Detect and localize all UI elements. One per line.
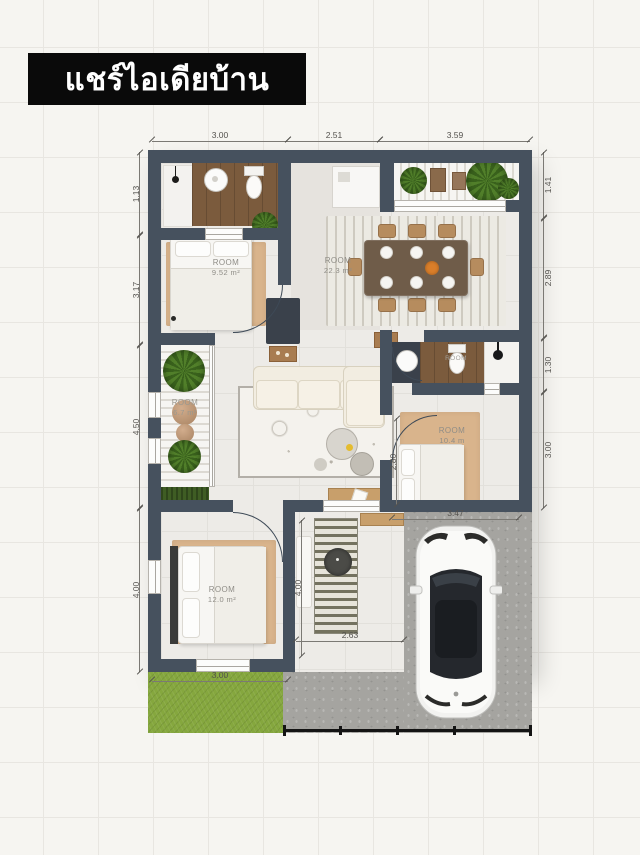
side-table — [314, 458, 327, 471]
bedroom1-pillow — [213, 241, 249, 257]
plant-icon — [400, 167, 427, 194]
plant-icon — [498, 178, 519, 199]
dining-chair — [438, 224, 456, 238]
window — [484, 383, 500, 395]
wall-segment — [148, 500, 233, 512]
title-banner: แชร์ไอเดียบ้าน — [28, 53, 306, 105]
hedge — [161, 487, 209, 500]
console-shelf — [269, 346, 297, 362]
pendant-lamp-icon — [172, 176, 179, 183]
plate — [442, 276, 455, 289]
dining-chair — [470, 258, 484, 276]
dim-left-3: 4.50 — [139, 345, 140, 508]
dim-right-1: 1.41 — [543, 152, 544, 218]
dim-bedroom2-length: 3.47 — [392, 519, 519, 520]
dim-left-4: 4.00 — [139, 508, 140, 672]
dim-closet-width: 2.63 — [296, 641, 404, 642]
dim-top-3: 3.59 — [380, 141, 530, 142]
dim-top-2: 2.51 — [288, 141, 380, 142]
dining-chair — [378, 224, 396, 238]
wall-segment — [283, 500, 295, 512]
floor-lamp-icon — [171, 316, 176, 321]
plate — [410, 276, 423, 289]
room-label-garden-strip: ROOM 6.7 m² — [161, 398, 209, 418]
window — [148, 438, 161, 464]
window — [148, 392, 161, 418]
page-title: แชร์ไอเดียบ้าน — [65, 54, 270, 104]
plate — [380, 246, 393, 259]
fence-post — [283, 725, 286, 736]
dining-chair — [378, 298, 396, 312]
wall-segment — [380, 383, 392, 395]
sofa-cushion — [256, 380, 298, 409]
room-label-dining: ROOM 22.3 m² — [312, 256, 364, 276]
dim-right-4: 3.00 — [543, 392, 544, 508]
plant-icon — [163, 350, 205, 392]
window — [394, 200, 506, 212]
wall-segment — [161, 228, 205, 240]
sofa-cushion — [298, 380, 340, 409]
fence-post — [453, 726, 456, 735]
sliding-door — [323, 500, 380, 512]
wall-segment — [506, 200, 532, 212]
room-label-bathroom2: ROOM — [438, 355, 474, 363]
wall-segment — [424, 330, 532, 342]
car-top-view — [410, 524, 502, 720]
wall-segment — [243, 228, 278, 240]
wall-segment — [278, 150, 291, 285]
toilet1-bowl — [246, 175, 262, 199]
plate — [442, 246, 455, 259]
page: แชร์ไอเดียบ้าน — [0, 0, 640, 855]
plant-icon — [168, 440, 201, 473]
dim-right-2: 2.89 — [543, 218, 544, 338]
garden-glass-wall — [209, 345, 215, 487]
fence-line — [283, 729, 532, 732]
wall-segment — [148, 150, 532, 163]
fence-post — [529, 725, 532, 736]
room-label-bedroom2: ROOM 10.4 m — [424, 426, 480, 446]
shower-area — [484, 342, 520, 383]
wall-segment — [380, 395, 392, 415]
dining-chair — [438, 298, 456, 312]
planter-box — [430, 168, 446, 192]
wall-segment — [295, 500, 323, 512]
dim-top-1: 3.00 — [152, 141, 288, 142]
plate — [410, 246, 423, 259]
console-decor — [276, 351, 280, 355]
plate — [380, 276, 393, 289]
room-label-bedroom1: ROOM 9.52 m² — [196, 258, 256, 278]
closet-rug — [314, 518, 358, 634]
fence-post — [396, 726, 399, 735]
shower-head-icon — [493, 350, 503, 360]
dim-left-2: 3.17 — [139, 235, 140, 345]
shower-mat — [163, 165, 193, 227]
dim-left-1: 1.13 — [139, 152, 140, 235]
dining-chair — [408, 298, 426, 312]
sofa-cushion — [346, 380, 384, 426]
window — [148, 560, 161, 594]
driveway-concrete — [283, 672, 404, 733]
bedroom1-pillow — [175, 241, 211, 257]
wall-segment — [161, 333, 215, 345]
stool-decor — [336, 558, 339, 561]
sink-drain — [212, 176, 218, 182]
dim-right-3: 1.30 — [543, 338, 544, 392]
wall-segment — [412, 383, 484, 395]
decor-bowl — [346, 444, 353, 451]
room-label-bedroom3: ROOM 12.0 m² — [194, 585, 250, 605]
planter-box — [452, 172, 466, 190]
dining-chair — [408, 224, 426, 238]
console-decor — [285, 353, 289, 357]
kitchen-sink — [338, 172, 350, 182]
dim-bedroom2-width: 2.80 — [396, 418, 397, 505]
bedroom3-headboard — [170, 546, 178, 644]
stool — [324, 548, 352, 576]
wall-segment — [500, 383, 532, 395]
dim-bedroom3-width: 3.00 — [152, 681, 288, 682]
bathroom-door-slot — [205, 228, 243, 240]
fence-post — [339, 726, 342, 735]
coffee-table — [350, 452, 374, 476]
wall-segment — [380, 200, 394, 212]
centerpiece-bowl — [425, 261, 439, 275]
